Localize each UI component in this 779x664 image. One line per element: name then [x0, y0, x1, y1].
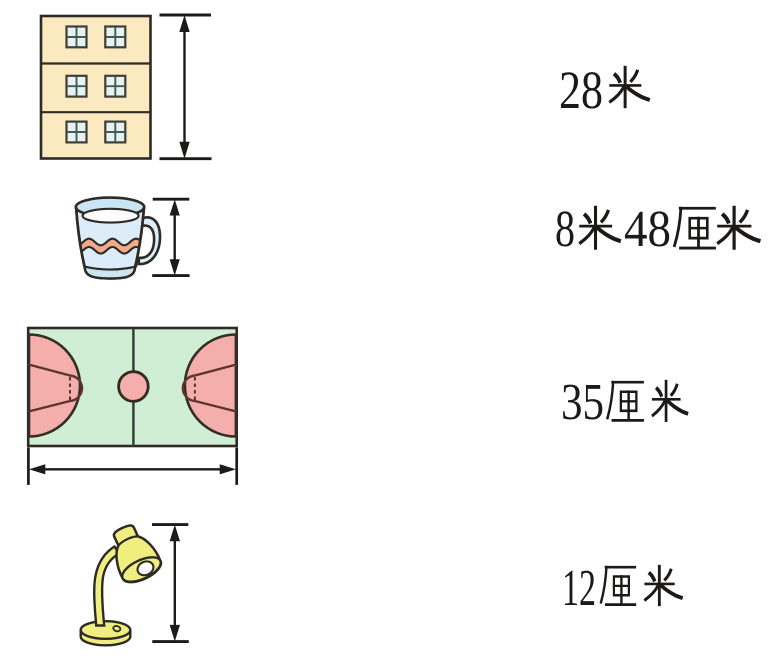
svg-text:48: 48: [624, 201, 671, 258]
svg-text:35: 35: [561, 374, 604, 431]
svg-text:12: 12: [562, 560, 596, 617]
svg-text:8: 8: [555, 201, 575, 258]
svg-text:28: 28: [559, 60, 603, 120]
